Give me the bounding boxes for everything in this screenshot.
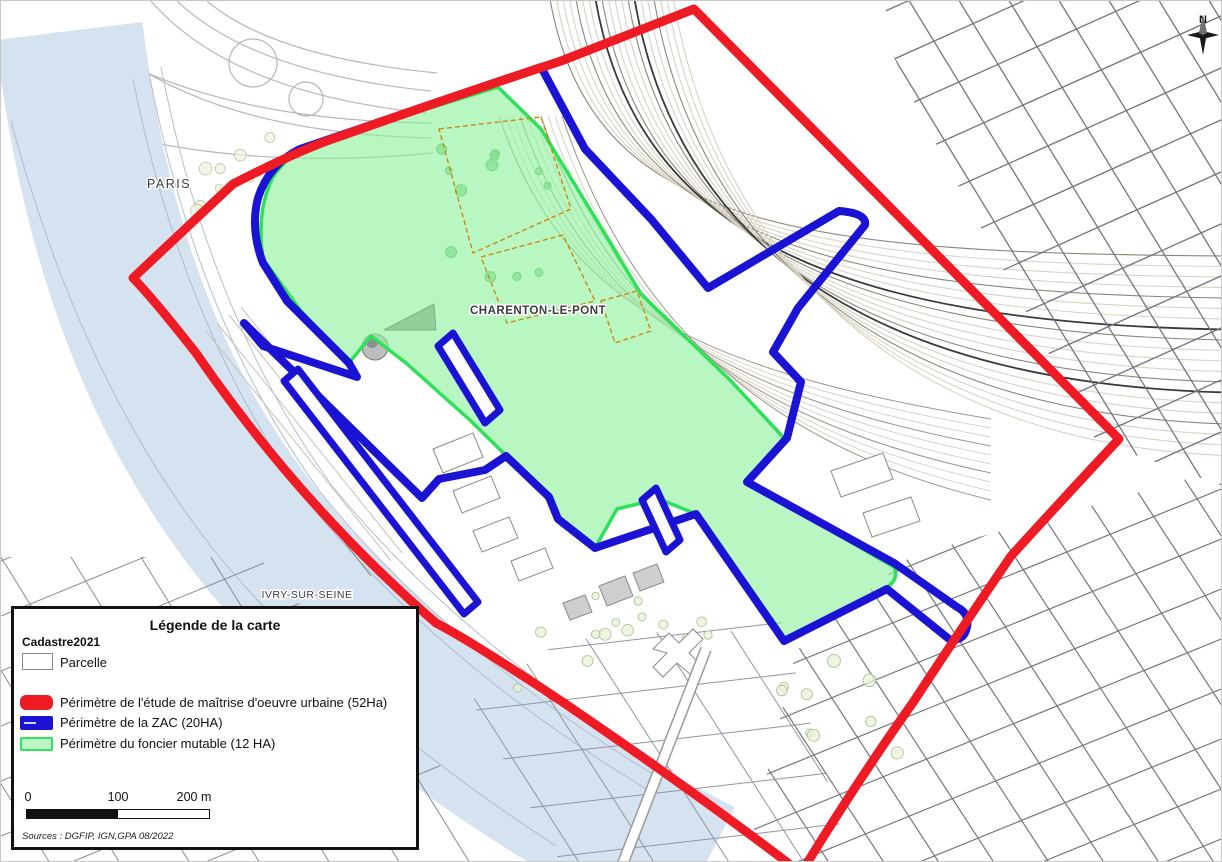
foncier-mutable-swatch xyxy=(20,737,53,751)
legend-box: Légende de la carte Cadastre2021 Parcell… xyxy=(11,606,419,850)
label-paris: PARIS xyxy=(147,177,191,191)
scale-bar xyxy=(26,809,210,819)
scale-tick-100: 100 xyxy=(108,790,129,804)
map-canvas: PARIS CHARENTON-LE-PONT IVRY-SUR-SEINE N… xyxy=(0,0,1222,862)
scale-tick-0: 0 xyxy=(25,790,32,804)
zac-perimeter-swatch xyxy=(20,716,53,730)
scale-tick-200: 200 m xyxy=(177,790,212,804)
study-perimeter-label: Périmètre de l'étude de maîtrise d'oeuvr… xyxy=(60,695,387,710)
scale-bar-filled-half xyxy=(27,810,118,818)
legend-title: Légende de la carte xyxy=(14,617,416,633)
foncier-mutable-label: Périmètre du foncier mutable (12 HA) xyxy=(60,736,275,751)
parcel-swatch xyxy=(22,653,53,670)
label-charenton: CHARENTON-LE-PONT xyxy=(470,305,606,317)
parcel-label: Parcelle xyxy=(60,655,107,670)
label-ivry: IVRY-SUR-SEINE xyxy=(261,589,352,601)
study-perimeter-swatch xyxy=(20,695,53,710)
legend-cadastre-label: Cadastre2021 xyxy=(22,635,100,649)
zac-perimeter-label: Périmètre de la ZAC (20HA) xyxy=(60,715,223,730)
sources-note: Sources : DGFIP, IGN,GPA 08/2022 xyxy=(22,831,173,842)
